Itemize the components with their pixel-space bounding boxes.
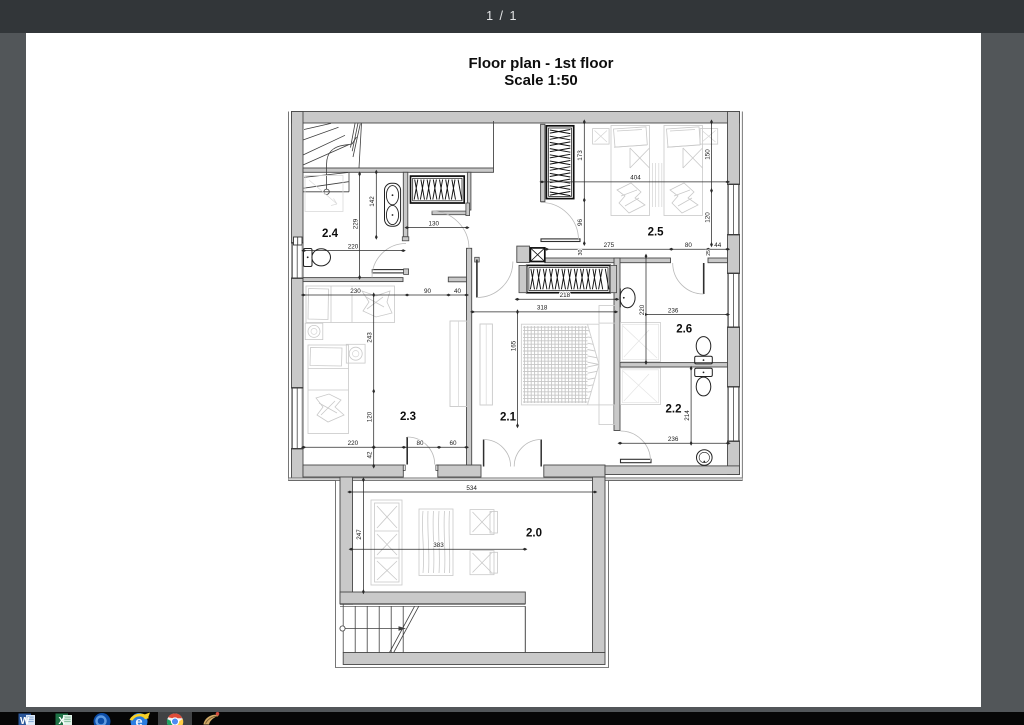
svg-text:X: X bbox=[58, 716, 65, 725]
svg-text:W: W bbox=[20, 716, 30, 725]
